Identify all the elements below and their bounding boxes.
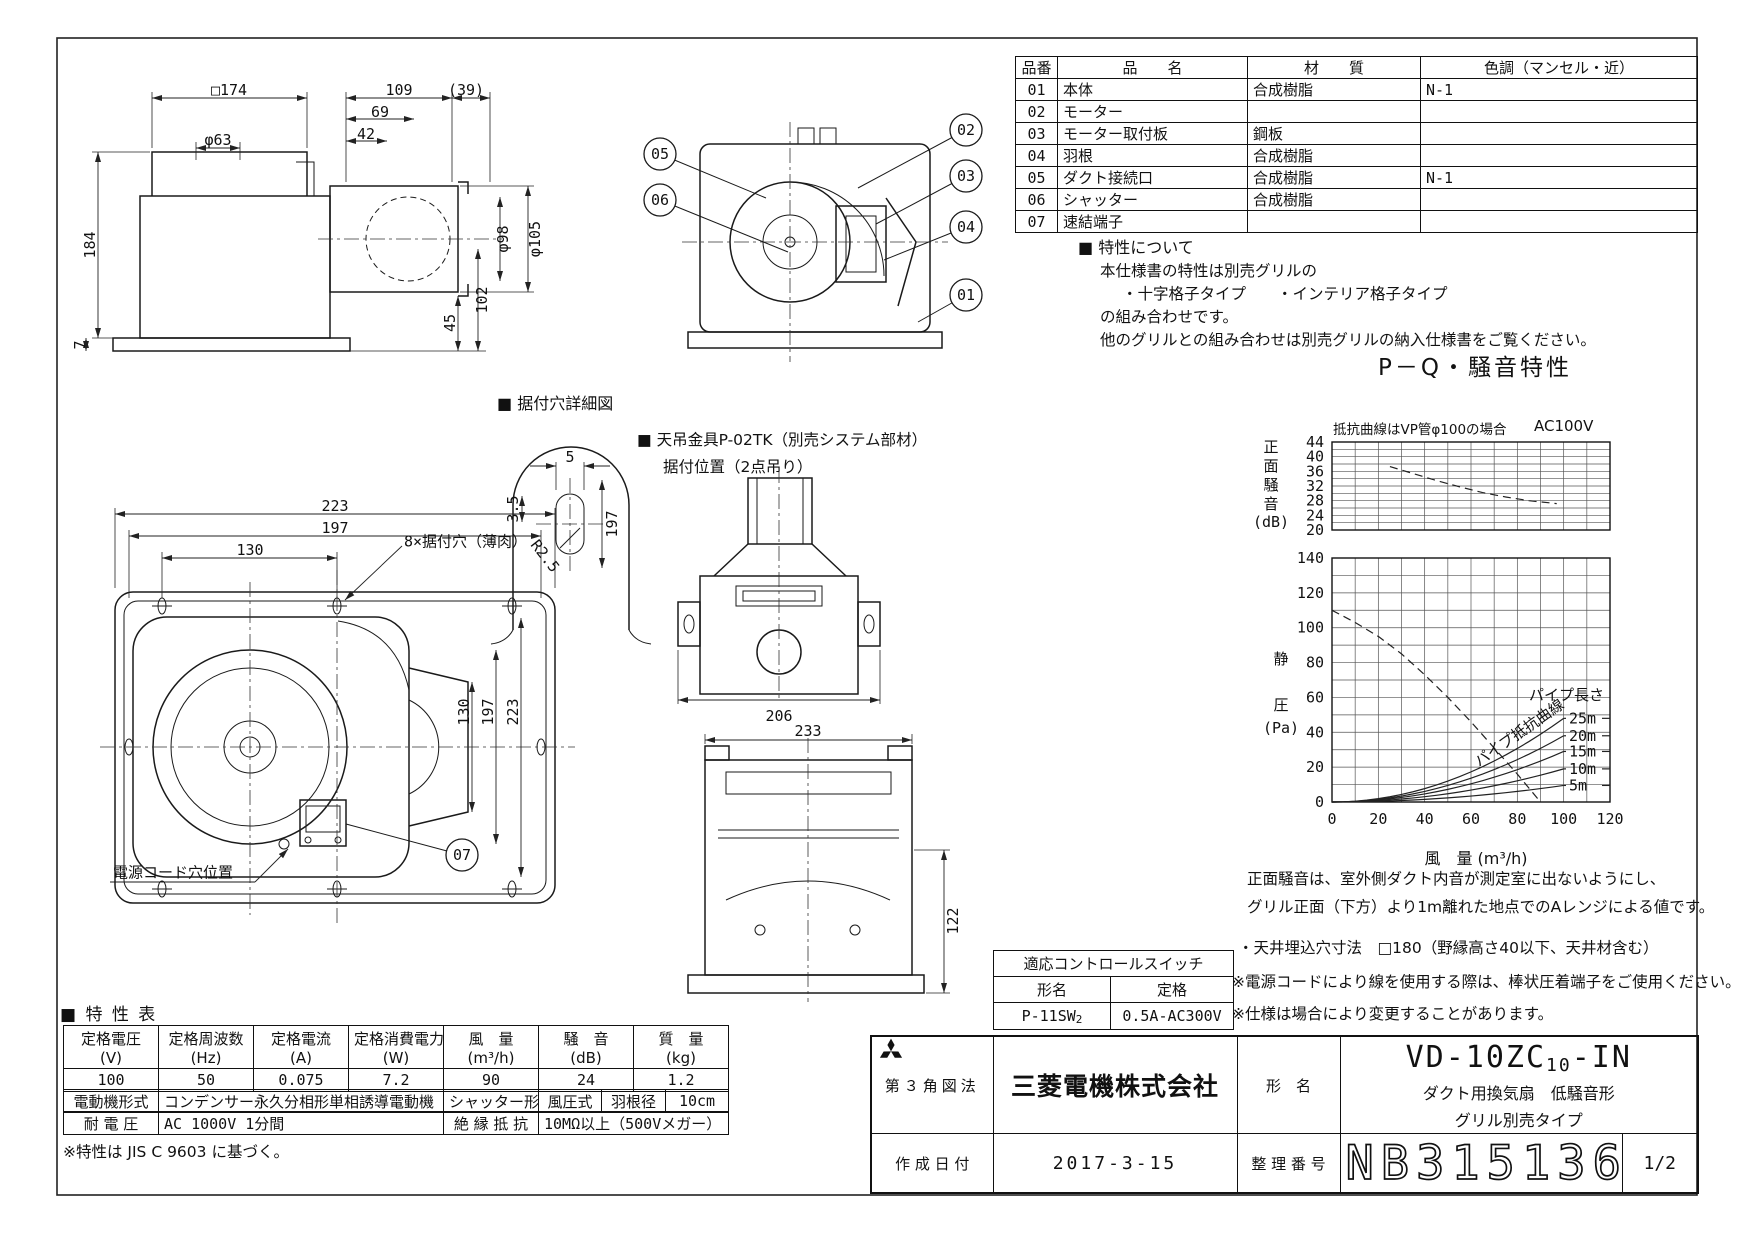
model-desc1: ダクト用換気扇 低騒音形 bbox=[1346, 1080, 1693, 1104]
y-tick-label: 80 bbox=[1306, 654, 1324, 672]
part-material: 鋼板 bbox=[1248, 123, 1421, 145]
drawing-number: NB315136A bbox=[1346, 1136, 1623, 1191]
pipe-length-tick: 15m bbox=[1569, 742, 1596, 760]
balloon-leader bbox=[346, 824, 462, 855]
motor-type-label: 電動機形式 bbox=[64, 1090, 159, 1113]
col-header-name: 品 名 bbox=[1058, 57, 1248, 79]
part-balloon-number: 01 bbox=[957, 286, 975, 304]
switch-model-prefix: P-11SW bbox=[1022, 1007, 1076, 1025]
part-color: N-1 bbox=[1421, 167, 1698, 189]
y-tick-label: 100 bbox=[1297, 619, 1324, 637]
balloon-leader bbox=[660, 154, 766, 198]
withstand-voltage-label: 耐 電 圧 bbox=[64, 1112, 159, 1135]
part-no: 04 bbox=[1016, 145, 1058, 167]
features-note-title: ■ 特性について bbox=[1078, 234, 1194, 258]
part-name: 速結端子 bbox=[1058, 211, 1248, 233]
remark-line: ※電源コードにより線を使用する際は、棒状圧着端子をご使用ください。 bbox=[1232, 970, 1741, 992]
part-balloon-number: 02 bbox=[957, 121, 975, 139]
part-name: 本体 bbox=[1058, 79, 1248, 101]
spec-table-voltage-row: 耐 電 圧 AC 1000V 1分間 絶 縁 抵 抗 10MΩ以上（500Vメガ… bbox=[63, 1111, 729, 1135]
y-tick-label: 40 bbox=[1306, 723, 1324, 741]
parts-row: 01本体合成樹脂N-1 bbox=[1016, 79, 1698, 101]
parts-row: 04羽根合成樹脂 bbox=[1016, 145, 1698, 167]
chart-note-line: 正面騒音は、室外側ダクト内音が測定室に出ないようにし、 bbox=[1247, 867, 1665, 889]
features-note-line: 他のグリルとの組み合わせは別売グリルの納入仕様書をご覧ください。 bbox=[1100, 328, 1596, 350]
part-material: 合成樹脂 bbox=[1248, 79, 1421, 101]
parts-row: 07速結端子 bbox=[1016, 211, 1698, 233]
withstand-voltage-value: AC 1000V 1分間 bbox=[159, 1112, 444, 1135]
spec-col-header: 質 量(kg) bbox=[634, 1026, 729, 1069]
motor-type-value: コンデンサー永久分相形単相誘導電動機 2極 bbox=[159, 1090, 444, 1113]
features-note-line: の組み合わせです。 bbox=[1100, 305, 1238, 327]
company-cell: 三菱電機株式会社 bbox=[993, 1036, 1237, 1134]
chart-subtitle-left: 抵抗曲線はVP管φ100の場合 bbox=[1333, 418, 1507, 438]
part-balloon-number: 07 bbox=[453, 846, 471, 864]
control-switch-rating: 0.5A-AC300V bbox=[1111, 1003, 1234, 1030]
parts-row: 06シャッター合成樹脂 bbox=[1016, 189, 1698, 211]
drawing-bracket-top-view bbox=[678, 468, 880, 704]
y-axis-label-char: 圧 bbox=[1273, 696, 1288, 714]
model-cell: VD-10ZC10-IN ダクト用換気扇 低騒音形 グリル別売タイプ bbox=[1340, 1036, 1698, 1134]
shutter-type-value: 風圧式 bbox=[539, 1090, 602, 1113]
control-switch-col2: 定格 bbox=[1111, 977, 1234, 1003]
mount-hole-detail-heading: ■ 据付穴詳細図 bbox=[497, 390, 613, 414]
spec-table-heading: ■ 特 性 表 bbox=[60, 1000, 157, 1025]
y-axis-label-char: 音 bbox=[1263, 495, 1278, 513]
control-switch-title: 適応コントロールスイッチ bbox=[994, 951, 1234, 977]
spec-col-header: 定格周波数(Hz) bbox=[159, 1026, 254, 1069]
y-tick-label: 60 bbox=[1306, 688, 1324, 706]
drawing-number-cell: NB315136A bbox=[1340, 1134, 1622, 1194]
number-label: 整 理 番 号 bbox=[1237, 1134, 1340, 1194]
part-name: モーター bbox=[1058, 101, 1248, 123]
part-name: シャッター bbox=[1058, 189, 1248, 211]
chart-subtitle-right: AC100V bbox=[1534, 417, 1593, 435]
x-tick-label: 120 bbox=[1596, 810, 1623, 828]
model-label: 形 名 bbox=[1237, 1036, 1340, 1134]
col-header-no: 品番 bbox=[1016, 57, 1058, 79]
drawing-section-view bbox=[682, 122, 948, 362]
control-switch-table: 適応コントロールスイッチ 形名 定格 P-11SW2 0.5A-AC300V bbox=[993, 950, 1234, 1030]
y-tick-label: 0 bbox=[1315, 793, 1324, 811]
part-name: 羽根 bbox=[1058, 145, 1248, 167]
drawing-mount-hole-detail bbox=[491, 447, 651, 644]
spec-col-header: 騒 音(dB) bbox=[539, 1026, 634, 1069]
bracket-heading-line2: 据付位置（2点吊り） bbox=[663, 455, 812, 477]
model-desc2: グリル別売タイプ bbox=[1346, 1107, 1693, 1131]
part-balloon-number: 03 bbox=[957, 167, 975, 185]
spec-col-header: 定格消費電力(W) bbox=[349, 1026, 444, 1069]
creation-date: 2017-3-15 bbox=[993, 1134, 1237, 1194]
y-tick-label: 120 bbox=[1297, 584, 1324, 602]
y-tick-label: 44 bbox=[1306, 433, 1324, 451]
drawing-side-view bbox=[86, 92, 534, 351]
parts-row: 05ダクト接続口合成樹脂N-1 bbox=[1016, 167, 1698, 189]
x-tick-label: 100 bbox=[1550, 810, 1577, 828]
y-axis-label-char: 騒 bbox=[1263, 476, 1278, 494]
y-tick-label: 140 bbox=[1297, 549, 1324, 567]
spec-col-header: 定格電圧(V) bbox=[64, 1026, 159, 1069]
title-block: 第３角図法 三菱電機株式会社 形 名 VD-10ZC10-IN ダクト用換気扇 … bbox=[870, 1035, 1699, 1194]
part-balloon-number: 06 bbox=[651, 191, 669, 209]
insulation-value: 10MΩ以上（500Vメガー） bbox=[539, 1112, 729, 1135]
blade-dia-label: 羽根径 bbox=[602, 1090, 666, 1113]
remark-line: ・天井埋込穴寸法 □180（野縁高さ40以下、天井材含む） bbox=[1238, 936, 1658, 958]
x-tick-label: 40 bbox=[1416, 810, 1434, 828]
part-name: ダクト接続口 bbox=[1058, 167, 1248, 189]
drawing-bracket-front-view bbox=[688, 734, 950, 1002]
shutter-type-label: シャッター形式 bbox=[444, 1090, 539, 1113]
y-axis-label-char: 静 bbox=[1273, 650, 1288, 668]
part-color bbox=[1421, 101, 1698, 123]
y-axis-label-char: 正 bbox=[1263, 438, 1278, 456]
remark-line: ※仕様は場合により変更することがあります。 bbox=[1232, 1002, 1553, 1024]
insulation-label: 絶 縁 抵 抗 bbox=[444, 1112, 539, 1135]
part-material: 合成樹脂 bbox=[1248, 167, 1421, 189]
pipe-length-title: パイプ長さ bbox=[1529, 686, 1604, 704]
chart-note-line: グリル正面（下方）より1m離れた地点でのAレンジによる値です。 bbox=[1247, 895, 1714, 917]
chart-x-axis-label: 風 量 (m³/h) bbox=[1376, 845, 1576, 869]
pipe-length-tick: 5m bbox=[1569, 776, 1587, 794]
control-switch-model: P-11SW2 bbox=[994, 1003, 1111, 1030]
spec-col-header: 定格電流(A) bbox=[254, 1026, 349, 1069]
part-no: 06 bbox=[1016, 189, 1058, 211]
chart-title: P－Q・騒音特性 bbox=[1330, 348, 1620, 382]
col-header-material: 材 質 bbox=[1248, 57, 1421, 79]
x-tick-label: 80 bbox=[1508, 810, 1526, 828]
spec-table-main: 定格電圧(V) 定格周波数(Hz) 定格電流(A) 定格消費電力(W) 風 量(… bbox=[63, 1025, 729, 1092]
part-material: 合成樹脂 bbox=[1248, 189, 1421, 211]
part-balloon-number: 04 bbox=[957, 218, 975, 236]
switch-model-sub: 2 bbox=[1076, 1013, 1083, 1026]
part-material bbox=[1248, 211, 1421, 233]
blade-dia-value: 10cm bbox=[666, 1090, 729, 1113]
x-tick-label: 60 bbox=[1462, 810, 1480, 828]
spec-col-header: 風 量(m³/h) bbox=[444, 1026, 539, 1069]
parts-table-header: 品番 品 名 材 質 色調（マンセル・近） bbox=[1016, 57, 1698, 79]
model-number: VD-10ZC10-IN bbox=[1346, 1040, 1693, 1076]
x-tick-label: 20 bbox=[1369, 810, 1387, 828]
page-number: 1/2 bbox=[1622, 1134, 1698, 1194]
part-name: モーター取付板 bbox=[1058, 123, 1248, 145]
part-color bbox=[1421, 145, 1698, 167]
features-note-line: 本仕様書の特性は別売グリルの bbox=[1100, 259, 1317, 281]
y-axis-unit: (Pa) bbox=[1263, 719, 1299, 737]
part-material: 合成樹脂 bbox=[1248, 145, 1421, 167]
part-color: N-1 bbox=[1421, 79, 1698, 101]
pipe-length-tick: 10m bbox=[1569, 760, 1596, 778]
y-axis-label-char: 面 bbox=[1263, 457, 1278, 475]
col-header-color: 色調（マンセル・近） bbox=[1421, 57, 1698, 79]
part-no: 05 bbox=[1016, 167, 1058, 189]
data-curve bbox=[1390, 467, 1557, 504]
y-axis-unit: (dB) bbox=[1253, 513, 1289, 531]
control-switch-col1: 形名 bbox=[994, 977, 1111, 1003]
bracket-heading-line1: ■ 天吊金具P-02TK（別売システム部材） bbox=[637, 428, 927, 450]
x-tick-label: 0 bbox=[1327, 810, 1336, 828]
part-no: 03 bbox=[1016, 123, 1058, 145]
mounting-holes bbox=[125, 598, 545, 897]
part-no: 07 bbox=[1016, 211, 1058, 233]
spec-table-footnote: ※特性は JIS C 9603 に基づく。 bbox=[63, 1140, 289, 1162]
parts-row: 02モーター bbox=[1016, 101, 1698, 123]
spec-table-motor-row: 電動機形式 コンデンサー永久分相形単相誘導電動機 2極 シャッター形式 風圧式 … bbox=[63, 1089, 729, 1113]
parts-table: 品番 品 名 材 質 色調（マンセル・近） 01本体合成樹脂N-1 02モーター… bbox=[1015, 56, 1698, 233]
features-note-line: ・十字格子タイプ ・インテリア格子タイプ bbox=[1122, 282, 1448, 304]
drawing-bottom-front-view bbox=[100, 508, 575, 925]
data-curve bbox=[1332, 610, 1541, 802]
part-no: 02 bbox=[1016, 101, 1058, 123]
part-color bbox=[1421, 123, 1698, 145]
part-color bbox=[1421, 189, 1698, 211]
company-name: 三菱電機株式会社 bbox=[1011, 1067, 1219, 1103]
part-no: 01 bbox=[1016, 79, 1058, 101]
spec-sheet: 0506020304010720242832364044正面騒音(dB)0204… bbox=[0, 0, 1754, 1240]
date-label: 作 成 日 付 bbox=[871, 1134, 993, 1194]
parts-row: 03モーター取付板鋼板 bbox=[1016, 123, 1698, 145]
pipe-length-tick: 25m bbox=[1569, 709, 1596, 727]
y-tick-label: 20 bbox=[1306, 758, 1324, 776]
part-material bbox=[1248, 101, 1421, 123]
part-color bbox=[1421, 211, 1698, 233]
part-balloon-number: 05 bbox=[651, 145, 669, 163]
